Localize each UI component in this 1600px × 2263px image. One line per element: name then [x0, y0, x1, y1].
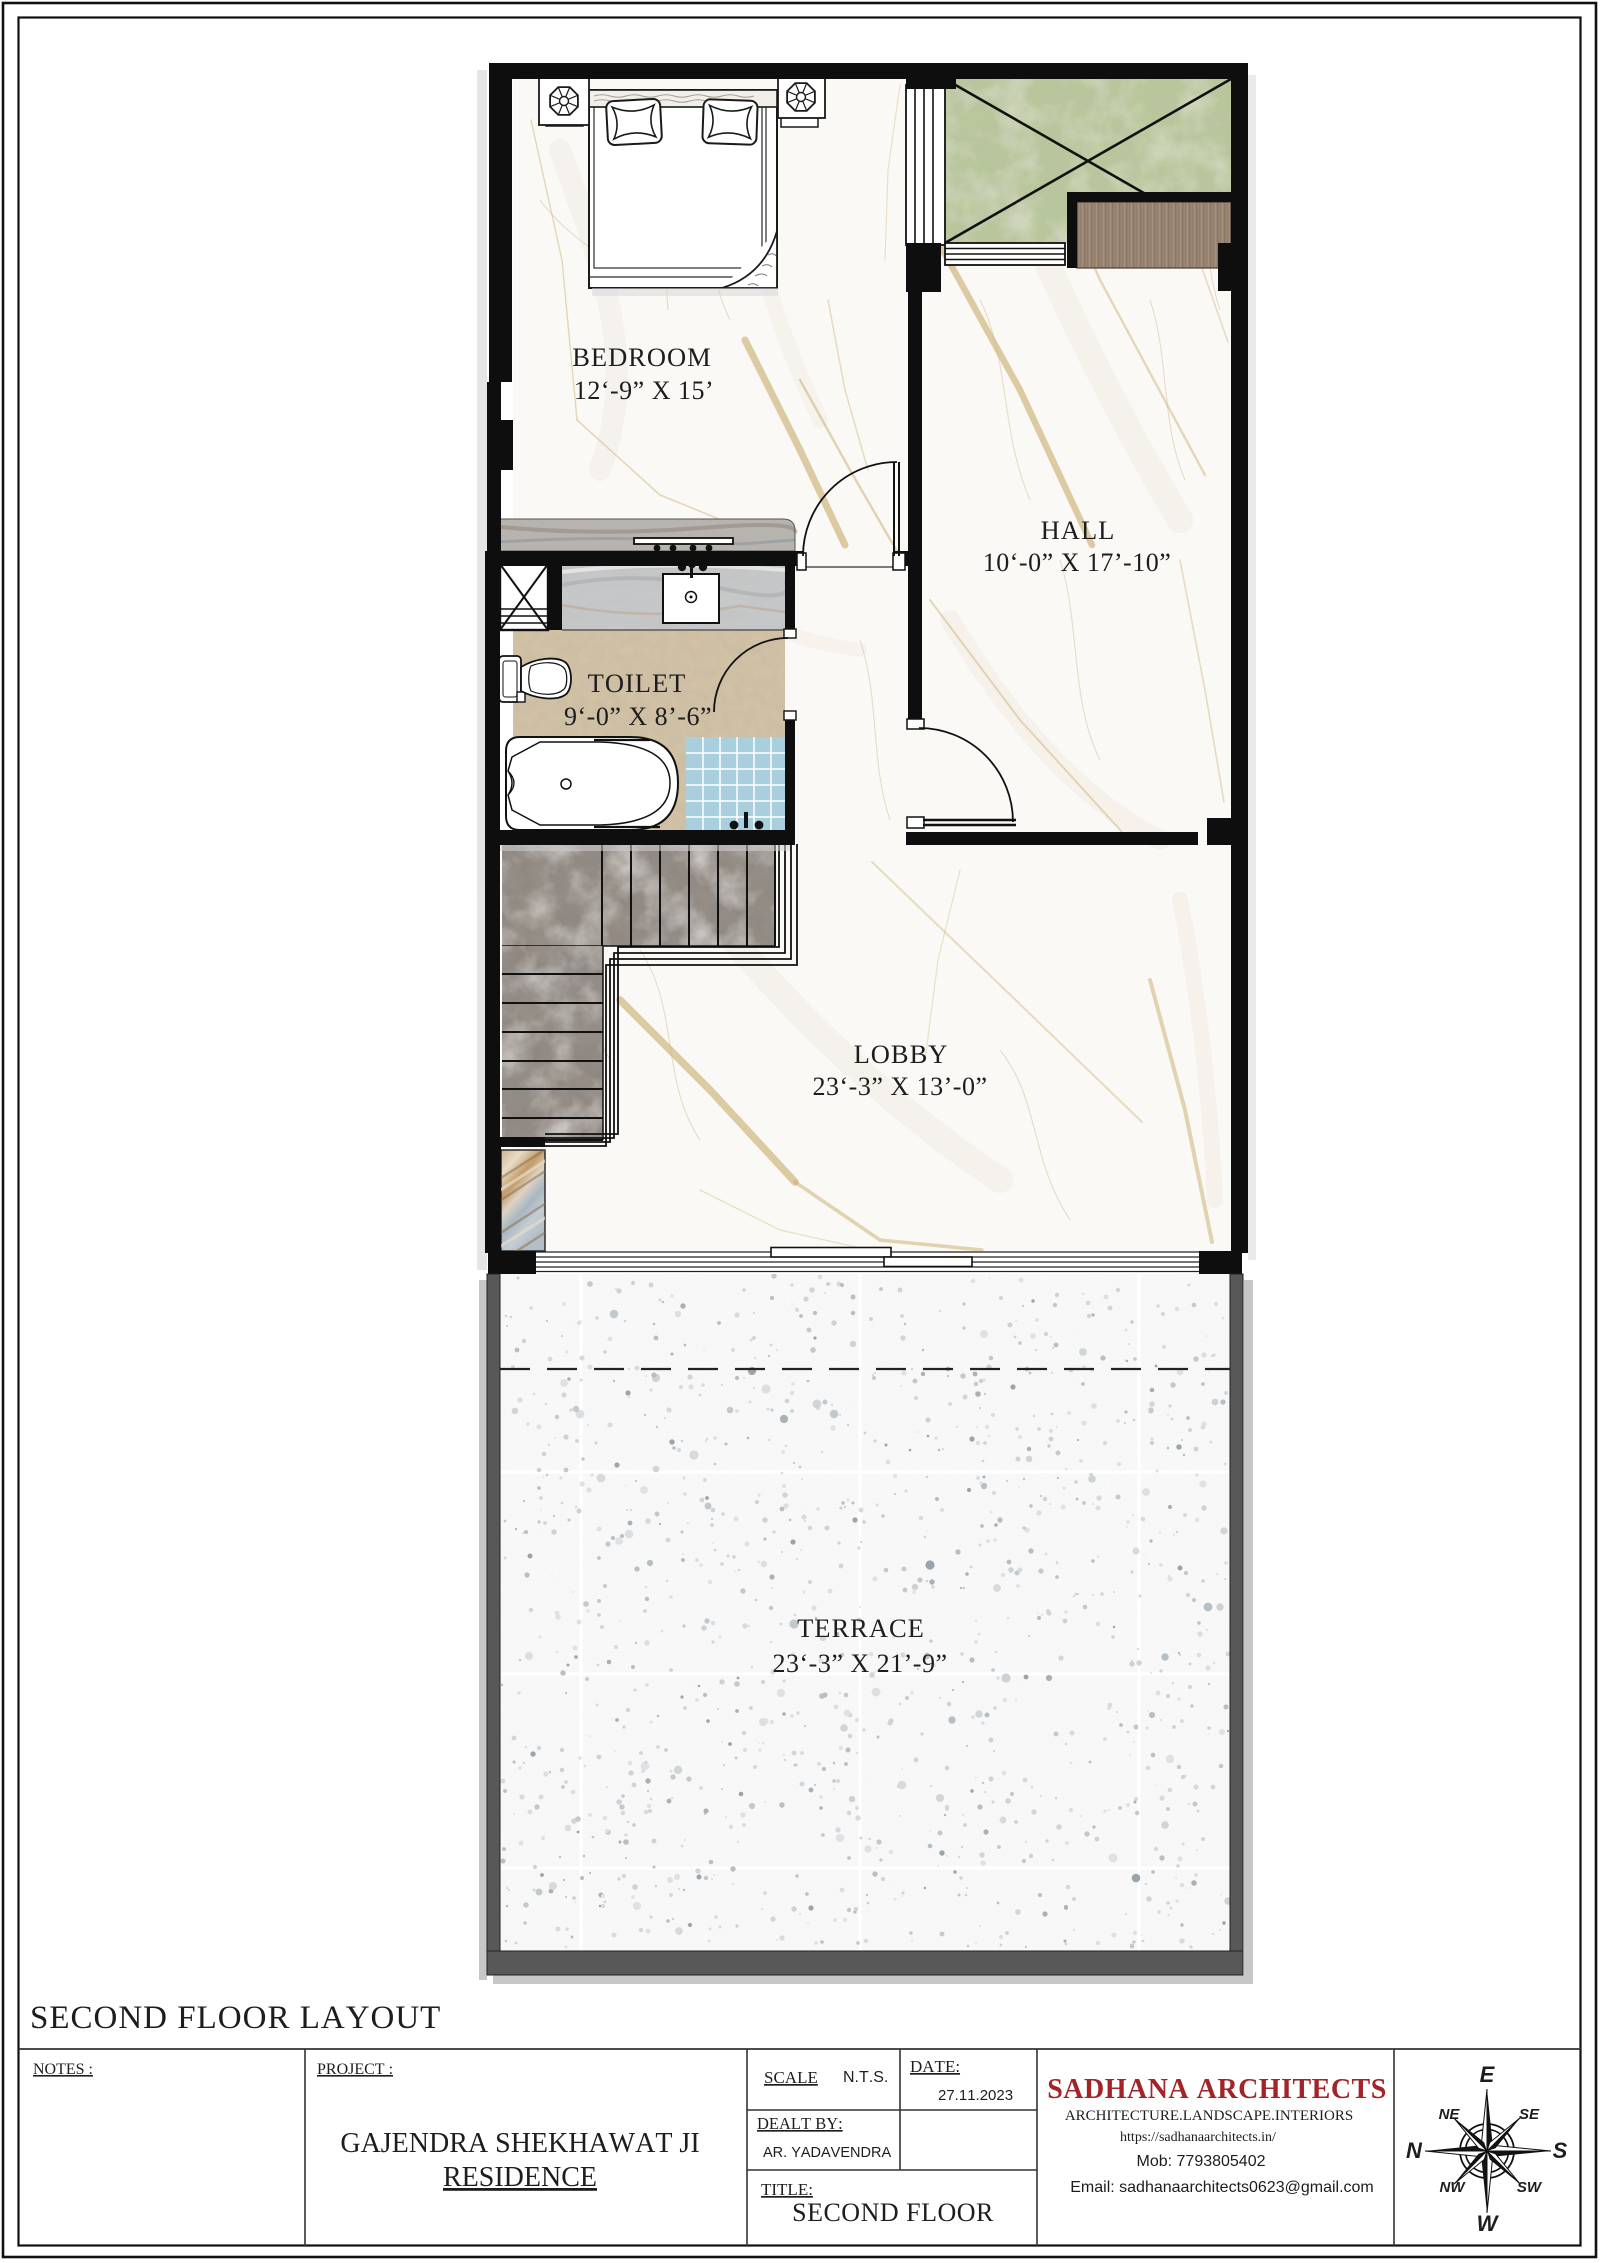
svg-text:DATE:: DATE:: [910, 2057, 960, 2076]
svg-text:SE: SE: [1519, 2106, 1540, 2123]
svg-text:BEDROOM: BEDROOM: [572, 342, 712, 372]
svg-text:ARCHITECTURE.LANDSCAPE.INTERIO: ARCHITECTURE.LANDSCAPE.INTERIORS: [1065, 2108, 1353, 2124]
svg-text:RESIDENCE: RESIDENCE: [443, 2162, 597, 2193]
svg-text:23‘-3” X 13’-0”: 23‘-3” X 13’-0”: [813, 1072, 988, 1101]
svg-text:SECOND FLOOR LAYOUT: SECOND FLOOR LAYOUT: [30, 2000, 441, 2036]
svg-text:https://sadhanaarchitects.in/: https://sadhanaarchitects.in/: [1120, 2130, 1276, 2145]
svg-text:10‘-0” X 17’-10”: 10‘-0” X 17’-10”: [983, 548, 1172, 577]
svg-text:SCALE: SCALE: [764, 2068, 818, 2087]
svg-text:SW: SW: [1517, 2179, 1543, 2196]
svg-text:N: N: [1406, 2138, 1423, 2163]
svg-text:W: W: [1477, 2211, 1500, 2236]
svg-text:LOBBY: LOBBY: [854, 1039, 949, 1069]
svg-text:S: S: [1553, 2138, 1568, 2163]
svg-text:N.T.S.: N.T.S.: [843, 2069, 888, 2086]
svg-text:27.11.2023: 27.11.2023: [938, 2087, 1013, 2104]
svg-text:HALL: HALL: [1041, 515, 1116, 545]
svg-text:12‘-9” X 15’: 12‘-9” X 15’: [574, 376, 714, 405]
svg-text:NE: NE: [1439, 2106, 1461, 2123]
svg-text:23‘-3” X 21’-9”: 23‘-3” X 21’-9”: [773, 1649, 948, 1678]
svg-text:DEALT BY:: DEALT BY:: [757, 2114, 843, 2133]
svg-text:9‘-0” X 8’-6”: 9‘-0” X 8’-6”: [564, 702, 712, 731]
svg-text:SADHANA ARCHITECTS: SADHANA ARCHITECTS: [1047, 2074, 1387, 2105]
svg-text:TOILET: TOILET: [588, 668, 687, 698]
svg-text:AR. YADAVENDRA: AR. YADAVENDRA: [763, 2145, 891, 2161]
svg-text:SECOND FLOOR: SECOND FLOOR: [792, 2198, 994, 2227]
svg-text:Email: sadhanaarchitects0623@g: Email: sadhanaarchitects0623@gmail.com: [1070, 2179, 1374, 2196]
svg-text:TERRACE: TERRACE: [797, 1613, 925, 1643]
svg-text:PROJECT :: PROJECT :: [317, 2061, 393, 2078]
svg-text:NOTES :: NOTES :: [33, 2061, 93, 2078]
svg-text:NW: NW: [1440, 2179, 1467, 2196]
svg-text:TITLE:: TITLE:: [761, 2180, 813, 2199]
svg-text:E: E: [1480, 2062, 1496, 2087]
svg-text:GAJENDRA SHEKHAWAT JI: GAJENDRA SHEKHAWAT JI: [340, 2128, 699, 2159]
svg-text:Mob: 7793805402: Mob: 7793805402: [1137, 2153, 1266, 2170]
